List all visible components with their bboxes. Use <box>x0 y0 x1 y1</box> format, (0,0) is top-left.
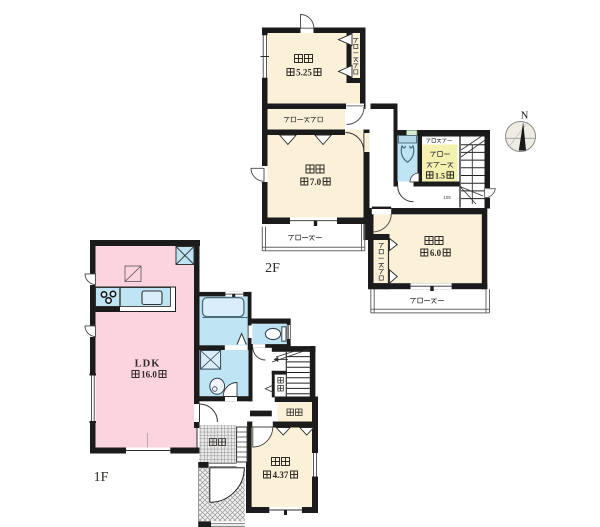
svg-text:1F: 1F <box>94 470 109 485</box>
svg-text:2F: 2F <box>265 261 280 276</box>
svg-text:7.0: 7.0 <box>310 177 322 187</box>
svg-text:LDK: LDK <box>135 359 161 370</box>
svg-text:5.25: 5.25 <box>296 68 312 78</box>
svg-text:1.5: 1.5 <box>435 171 445 180</box>
svg-text:105: 105 <box>443 195 451 200</box>
svg-text:N: N <box>521 111 529 122</box>
svg-text:6.0: 6.0 <box>430 248 442 258</box>
svg-text:16.0: 16.0 <box>141 370 157 380</box>
svg-text:4.37: 4.37 <box>273 470 289 480</box>
